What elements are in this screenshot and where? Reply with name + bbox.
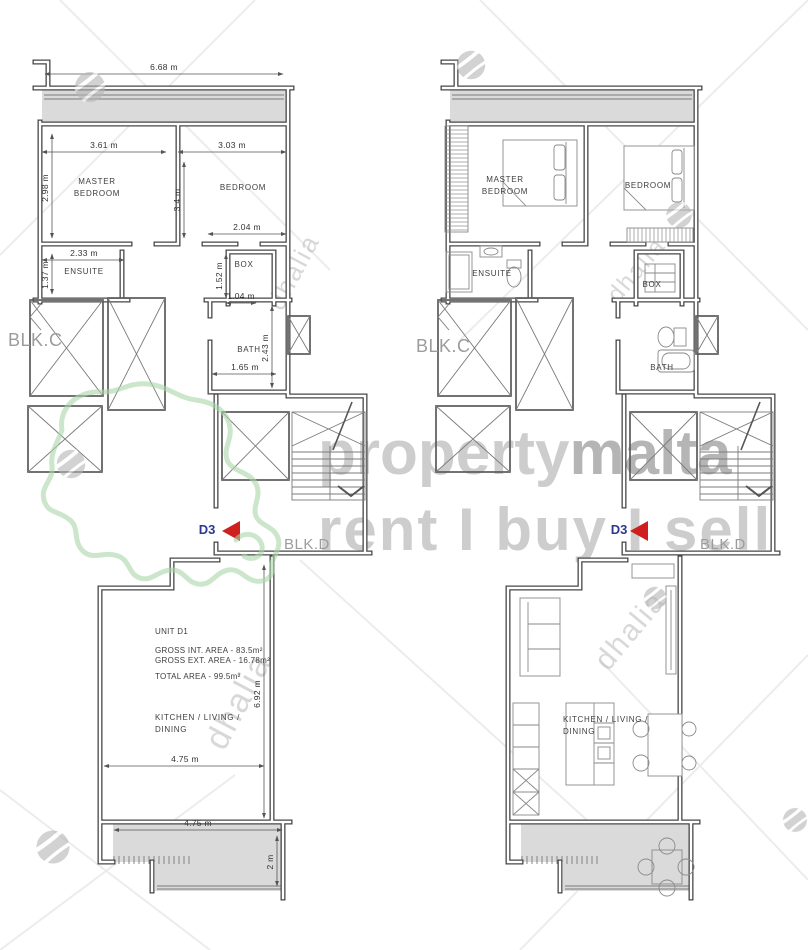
label-kitchen-living: KITCHEN / LIVING /	[563, 715, 648, 724]
label-bedroom: BEDROOM	[220, 183, 266, 192]
dim-master-width: 3.61 m	[90, 140, 118, 150]
label-box: BOX	[643, 280, 662, 289]
dim-ensuite-depth: 1.37 m	[40, 261, 50, 289]
label-box: BOX	[235, 260, 254, 269]
dim-box-depth: 1.52 m	[214, 262, 224, 290]
sofa	[520, 598, 560, 676]
dim-bath-depth: 2.43 m	[260, 334, 270, 362]
dim-master-depth: 2.98 m	[40, 174, 50, 202]
label-kitchen-living: DINING	[155, 725, 187, 734]
label-bedroom: BEDROOM	[625, 181, 671, 190]
label-ensuite: ENSUITE	[64, 267, 104, 276]
label-master-bedroom: MASTER	[78, 177, 116, 186]
label-block-d: BLK.D	[284, 536, 330, 553]
label-master-bedroom: MASTER	[486, 175, 524, 184]
bedroom-bed	[624, 146, 694, 210]
floorplan-page: propertymalta rent I buy I sell dhalia d…	[0, 0, 808, 950]
label-kitchen-living: KITCHEN / LIVING /	[155, 713, 240, 722]
gross-internal-area: GROSS INT. AREA - 83.5m²	[155, 646, 263, 655]
unit-title: UNIT D1	[155, 627, 188, 636]
label-block-d: BLK.D	[700, 536, 746, 553]
floorplan-canvas: propertymalta rent I buy I sell dhalia d…	[0, 0, 808, 950]
dim-box-width: 1.04 m	[227, 291, 255, 301]
total-area: TOTAL AREA - 99.5m²	[155, 672, 241, 681]
label-block-c: BLK.C	[416, 336, 471, 356]
dim-partition-depth: 3.4 m	[172, 189, 182, 212]
left-plan: 6.68 m 3.61 m 3.03 m 2.98 m 3.4 m 2.04 m…	[8, 62, 370, 898]
watermark-brand-light: property	[318, 419, 570, 488]
master-bed	[503, 140, 577, 206]
dim-bedroom-width: 3.03 m	[218, 140, 246, 150]
label-master-bedroom: BEDROOM	[482, 187, 528, 196]
label-master-bedroom: BEDROOM	[74, 189, 120, 198]
dim-living-width: 4.75 m	[171, 754, 199, 764]
label-bath: BATH	[237, 345, 261, 354]
watermark-brand: propertymalta	[318, 419, 732, 488]
dim-living-depth: 6.92 m	[252, 680, 262, 708]
kitchen-counter	[513, 703, 539, 815]
dim-terrace-depth: 2 m	[265, 854, 275, 869]
dim-bedroom-lower-width: 2.04 m	[233, 222, 261, 232]
label-unit-marker: D3	[199, 522, 216, 537]
gross-external-area: GROSS EXT. AREA - 16.78m²	[155, 656, 270, 665]
label-bath: BATH	[650, 363, 674, 372]
dim-top-width: 6.68 m	[150, 62, 178, 72]
wardrobe	[445, 126, 468, 232]
label-unit-marker: D3	[611, 522, 628, 537]
ledge	[632, 564, 674, 578]
wardrobe	[627, 228, 693, 242]
label-ensuite: ENSUITE	[472, 269, 512, 278]
dim-terrace-width: 4.75 m	[184, 818, 212, 828]
dim-ensuite-width: 2.33 m	[70, 248, 98, 258]
label-kitchen-living: DINING	[563, 727, 595, 736]
malta-outline-watermark	[43, 384, 279, 584]
watermark-brand-dark: malta	[569, 419, 731, 488]
tv-unit	[666, 586, 676, 674]
dim-bath-width: 1.65 m	[231, 362, 259, 372]
label-block-c: BLK.C	[8, 330, 63, 350]
